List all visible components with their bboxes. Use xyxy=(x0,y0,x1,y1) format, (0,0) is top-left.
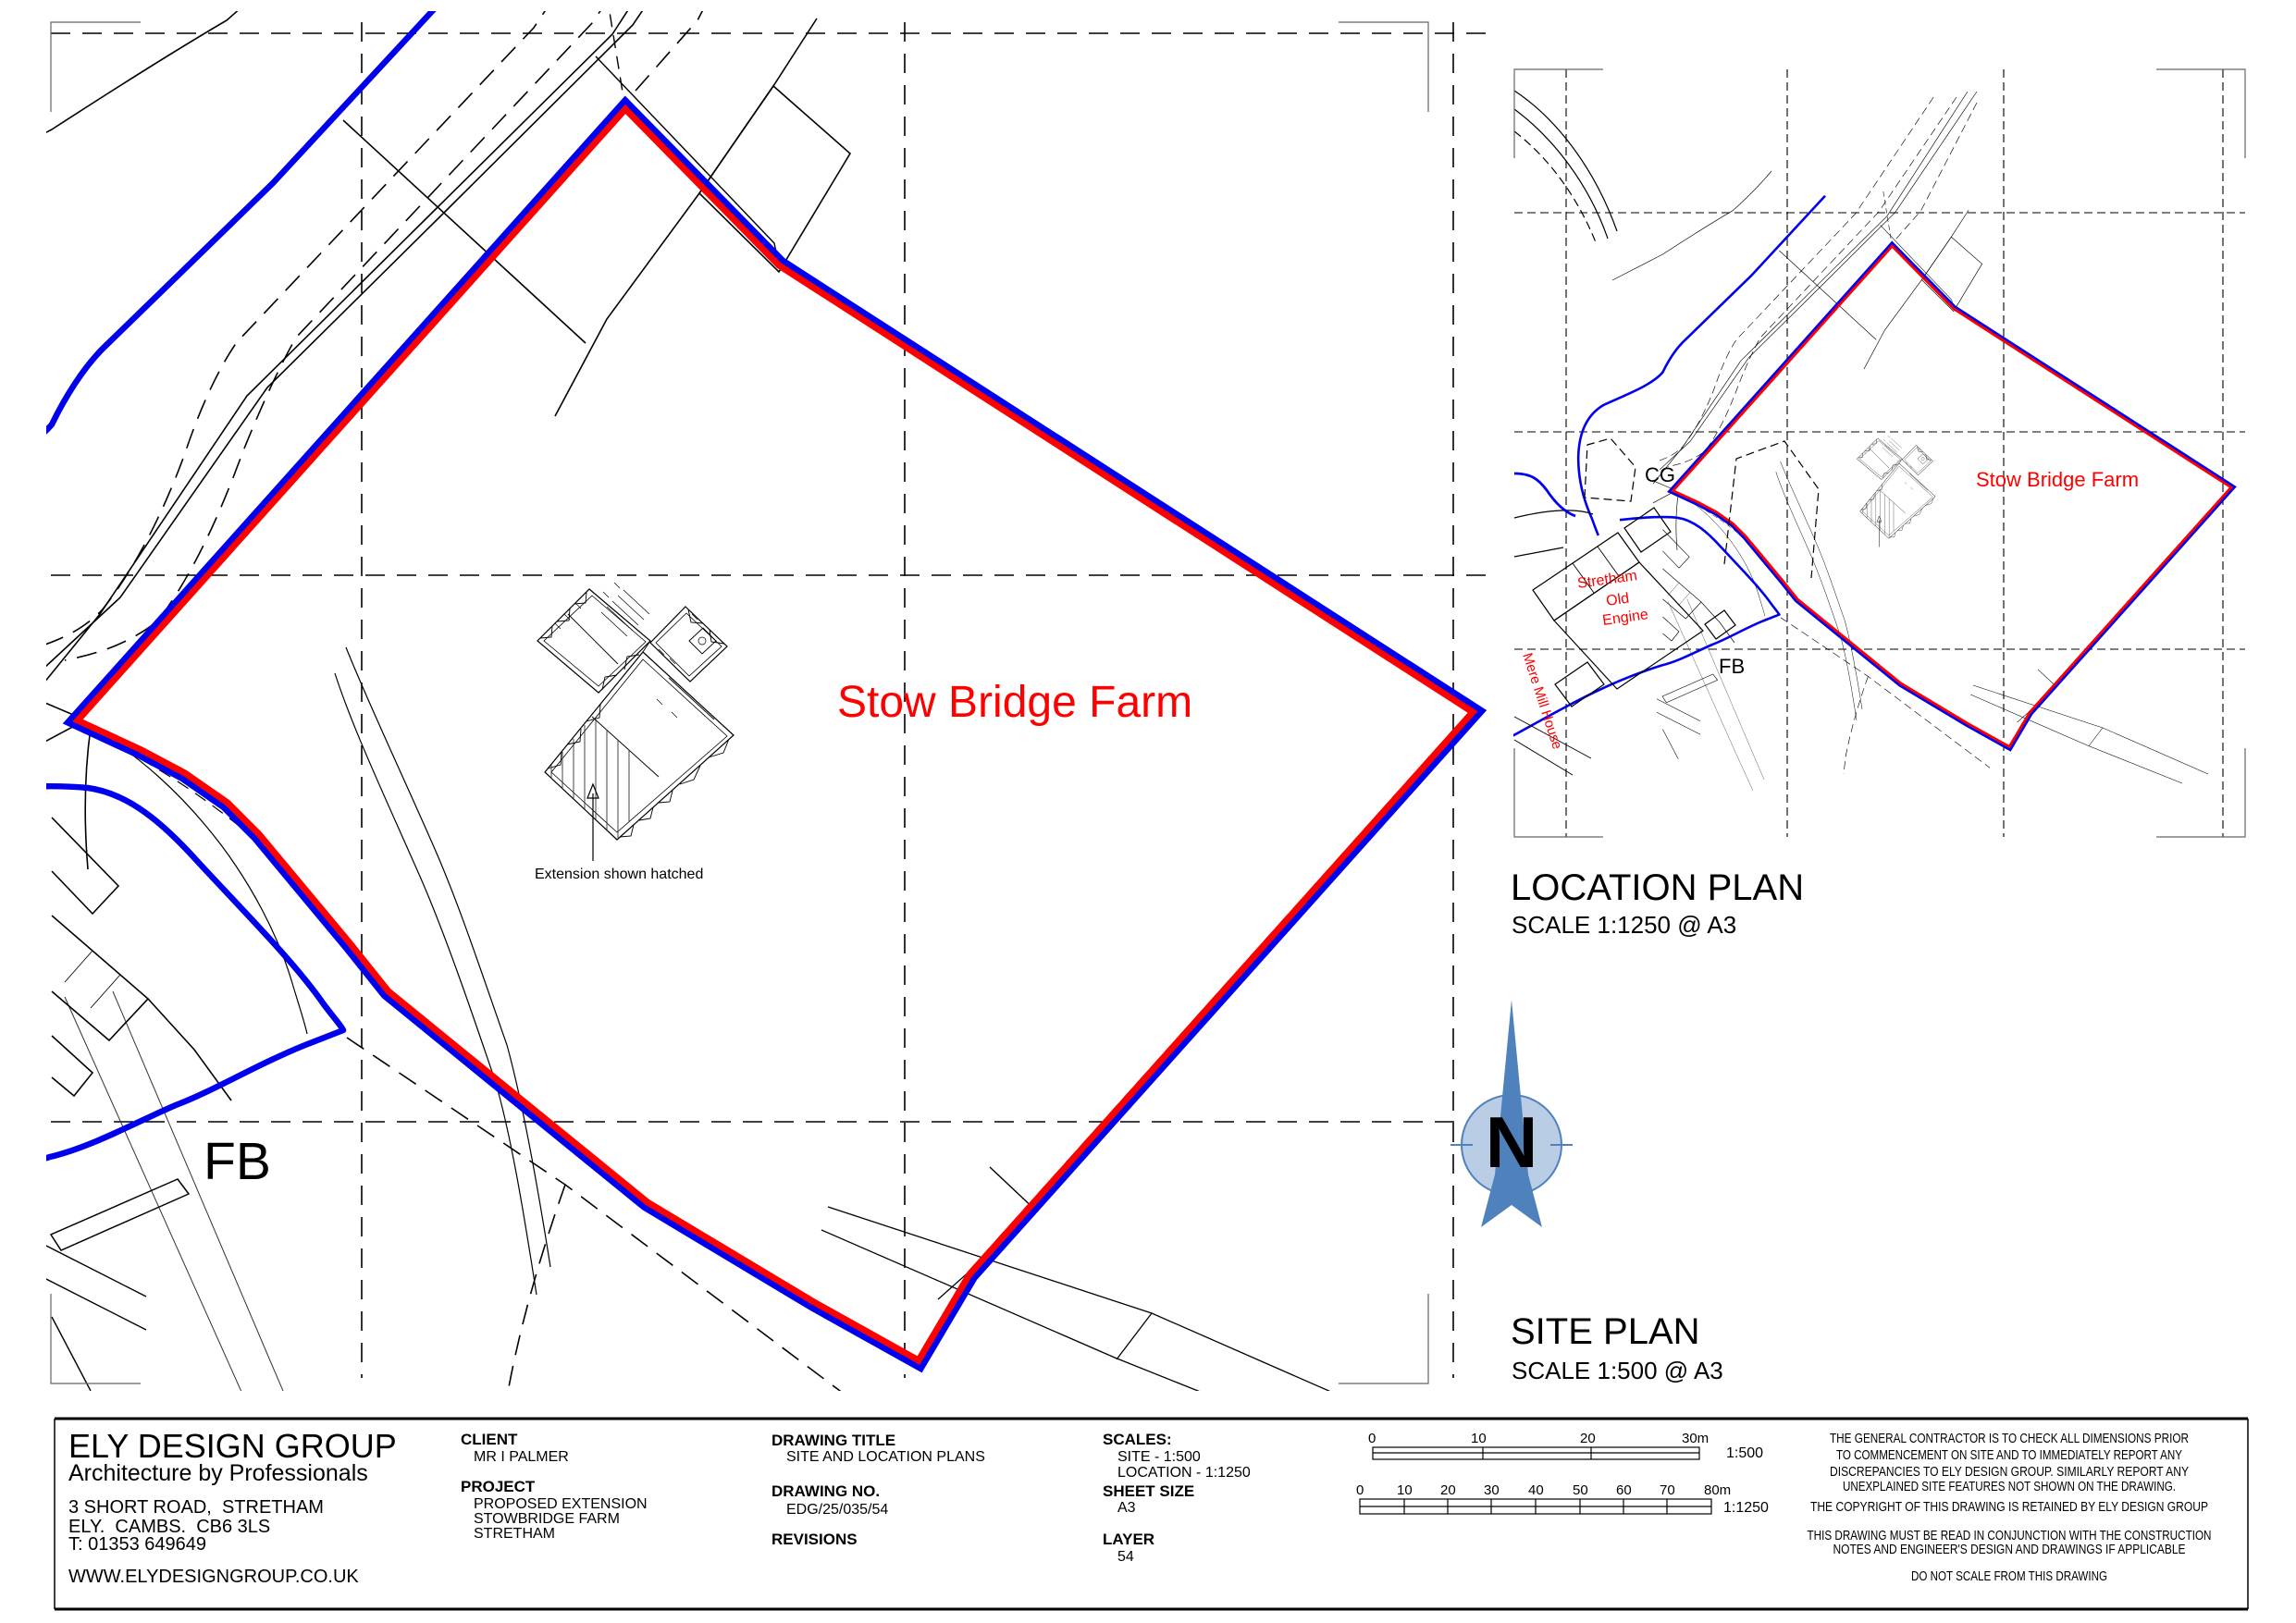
svg-text:54: 54 xyxy=(1117,1549,1134,1565)
svg-text:1:500: 1:500 xyxy=(1726,1445,1763,1461)
svg-text:Stow Bridge Farm: Stow Bridge Farm xyxy=(1976,468,2139,491)
svg-text:70: 70 xyxy=(1660,1482,1675,1498)
svg-text:PROJECT: PROJECT xyxy=(461,1478,536,1495)
svg-text:EDG/25/035/54: EDG/25/035/54 xyxy=(786,1502,888,1518)
svg-text:N: N xyxy=(1486,1101,1537,1183)
svg-text:20: 20 xyxy=(1580,1431,1596,1446)
svg-text:STOWBRIDGE FARM: STOWBRIDGE FARM xyxy=(474,1511,620,1527)
svg-text:DRAWING NO.: DRAWING NO. xyxy=(772,1482,880,1500)
svg-text:ELY DESIGN GROUP: ELY DESIGN GROUP xyxy=(68,1427,397,1465)
svg-text:0: 0 xyxy=(1368,1431,1376,1446)
svg-text:WWW.ELYDESIGNGROUP.CO.UK: WWW.ELYDESIGNGROUP.CO.UK xyxy=(68,1567,359,1587)
svg-text:SITE AND LOCATION PLANS: SITE AND LOCATION PLANS xyxy=(786,1449,985,1465)
svg-text:Old: Old xyxy=(1605,591,1630,609)
svg-text:PROPOSED EXTENSION: PROPOSED EXTENSION xyxy=(474,1496,648,1512)
svg-text:DRAWING TITLE: DRAWING TITLE xyxy=(772,1432,895,1449)
svg-text:30: 30 xyxy=(1484,1482,1500,1498)
svg-text:SCALE 1:1250 @ A3: SCALE 1:1250 @ A3 xyxy=(1512,911,1736,939)
svg-text:SCALES:: SCALES: xyxy=(1103,1431,1172,1448)
svg-text:NOTES AND ENGINEER'S DESIGN AN: NOTES AND ENGINEER'S DESIGN AND DRAWINGS… xyxy=(1833,1542,2186,1557)
svg-text:Stow Bridge Farm: Stow Bridge Farm xyxy=(837,678,1192,727)
svg-text:CG: CG xyxy=(1645,463,1675,486)
svg-text:REVISIONS: REVISIONS xyxy=(772,1531,858,1548)
svg-text:50: 50 xyxy=(1573,1482,1588,1498)
svg-text:1:1250: 1:1250 xyxy=(1723,1500,1769,1516)
svg-text:SHEET SIZE: SHEET SIZE xyxy=(1103,1482,1194,1500)
svg-text:Extension shown hatched: Extension shown hatched xyxy=(535,867,703,882)
svg-text:LOCATION - 1:1250: LOCATION - 1:1250 xyxy=(1117,1465,1251,1481)
svg-text:60: 60 xyxy=(1616,1482,1632,1498)
svg-text:UNEXPLAINED SITE FEATURES NOT: UNEXPLAINED SITE FEATURES NOT SHOWN ON T… xyxy=(1843,1479,2176,1494)
svg-text:LAYER: LAYER xyxy=(1103,1531,1154,1548)
svg-text:Architecture by Professionals: Architecture by Professionals xyxy=(68,1460,368,1486)
svg-text:FB: FB xyxy=(1719,655,1745,678)
svg-text:THE COPYRIGHT OF THIS DRAWING: THE COPYRIGHT OF THIS DRAWING IS RETAINE… xyxy=(1810,1499,2208,1515)
svg-text:FB: FB xyxy=(204,1132,271,1191)
svg-text:3 SHORT ROAD, STRETHAM: 3 SHORT ROAD, STRETHAM xyxy=(68,1497,324,1518)
svg-text:DO NOT SCALE FROM THIS DRAWING: DO NOT SCALE FROM THIS DRAWING xyxy=(1911,1568,2107,1584)
svg-text:0: 0 xyxy=(1356,1482,1364,1498)
svg-text:TO COMMENCEMENT ON SITE AND TO: TO COMMENCEMENT ON SITE AND TO IMMEDIATE… xyxy=(1836,1447,2182,1463)
svg-text:40: 40 xyxy=(1528,1482,1544,1498)
svg-text:SITE PLAN: SITE PLAN xyxy=(1511,1311,1700,1352)
svg-text:20: 20 xyxy=(1440,1482,1456,1498)
svg-text:A3: A3 xyxy=(1117,1500,1136,1516)
svg-text:STRETHAM: STRETHAM xyxy=(474,1526,555,1542)
svg-text:80m: 80m xyxy=(1704,1482,1731,1498)
svg-text:LOCATION PLAN: LOCATION PLAN xyxy=(1511,867,1804,908)
svg-text:T: 01353 649649: T: 01353 649649 xyxy=(68,1534,206,1555)
svg-text:DISCREPANCIES TO ELY DESIGN GR: DISCREPANCIES TO ELY DESIGN GROUP. SIMIL… xyxy=(1830,1464,2189,1480)
svg-text:MR I PALMER: MR I PALMER xyxy=(474,1449,569,1465)
svg-text:THE GENERAL CONTRACTOR IS TO C: THE GENERAL CONTRACTOR IS TO CHECK ALL D… xyxy=(1830,1431,2189,1446)
svg-text:SCALE 1:500 @ A3: SCALE 1:500 @ A3 xyxy=(1512,1357,1723,1384)
svg-text:CLIENT: CLIENT xyxy=(461,1431,518,1448)
svg-text:10: 10 xyxy=(1471,1431,1487,1446)
svg-text:30m: 30m xyxy=(1682,1431,1709,1446)
svg-text:10: 10 xyxy=(1397,1482,1413,1498)
svg-text:SITE - 1:500: SITE - 1:500 xyxy=(1117,1449,1201,1465)
